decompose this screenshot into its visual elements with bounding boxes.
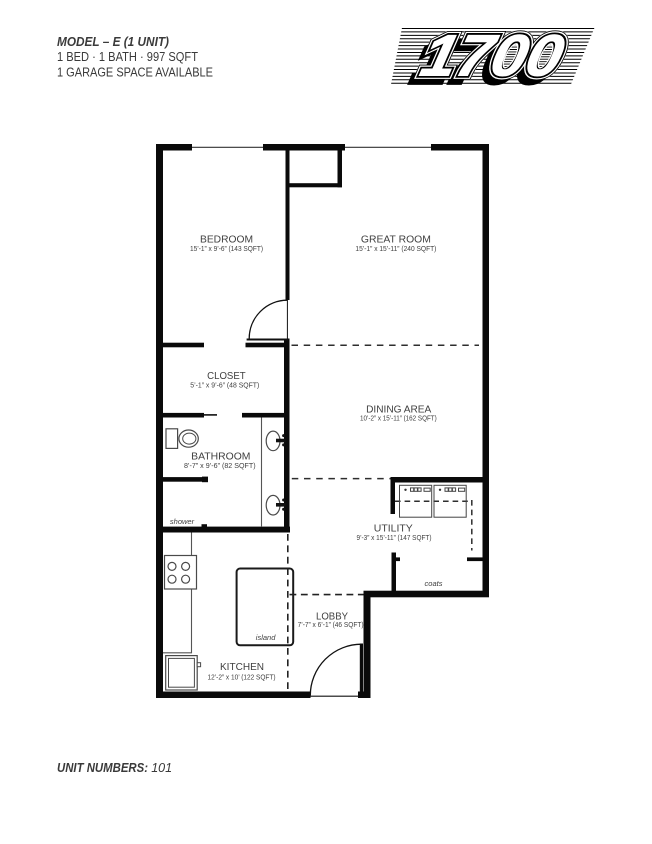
svg-text:UNIT NUMBERS:: UNIT NUMBERS: xyxy=(57,760,148,775)
svg-text:10’-2” x 15’-11” (162 SQFT): 10’-2” x 15’-11” (162 SQFT) xyxy=(360,414,437,423)
svg-text:MODEL – E (1 UNIT): MODEL – E (1 UNIT) xyxy=(57,34,169,49)
svg-text:9’-3” x 15’-11” (147 SQFT): 9’-3” x 15’-11” (147 SQFT) xyxy=(357,533,432,542)
svg-text:8’-7” x 9’-6” (82 SQFT): 8’-7” x 9’-6” (82 SQFT) xyxy=(184,461,256,470)
svg-text:KITCHEN: KITCHEN xyxy=(220,662,264,673)
svg-text:1 GARAGE SPACE AVAILABLE: 1 GARAGE SPACE AVAILABLE xyxy=(57,64,213,79)
svg-text:101: 101 xyxy=(151,760,172,775)
svg-text:7’-7” x 6’-1” (46 SQFT): 7’-7” x 6’-1” (46 SQFT) xyxy=(298,620,364,629)
svg-text:15’-1” x 9’-6” (143 SQFT): 15’-1” x 9’-6” (143 SQFT) xyxy=(190,244,263,253)
svg-text:coats: coats xyxy=(425,579,443,588)
svg-text:15’-1” x 15’-11” (240 SQFT): 15’-1” x 15’-11” (240 SQFT) xyxy=(355,244,436,253)
svg-text:shower: shower xyxy=(170,517,195,526)
svg-text:12’-2” x 10’ (122 SQFT): 12’-2” x 10’ (122 SQFT) xyxy=(208,672,276,681)
svg-text:1 BED · 1 BATH · 997 SQFT: 1 BED · 1 BATH · 997 SQFT xyxy=(57,49,198,64)
svg-text:5’-1” x 9’-6” (48 SQFT): 5’-1” x 9’-6” (48 SQFT) xyxy=(190,381,259,390)
svg-text:island: island xyxy=(256,633,276,642)
